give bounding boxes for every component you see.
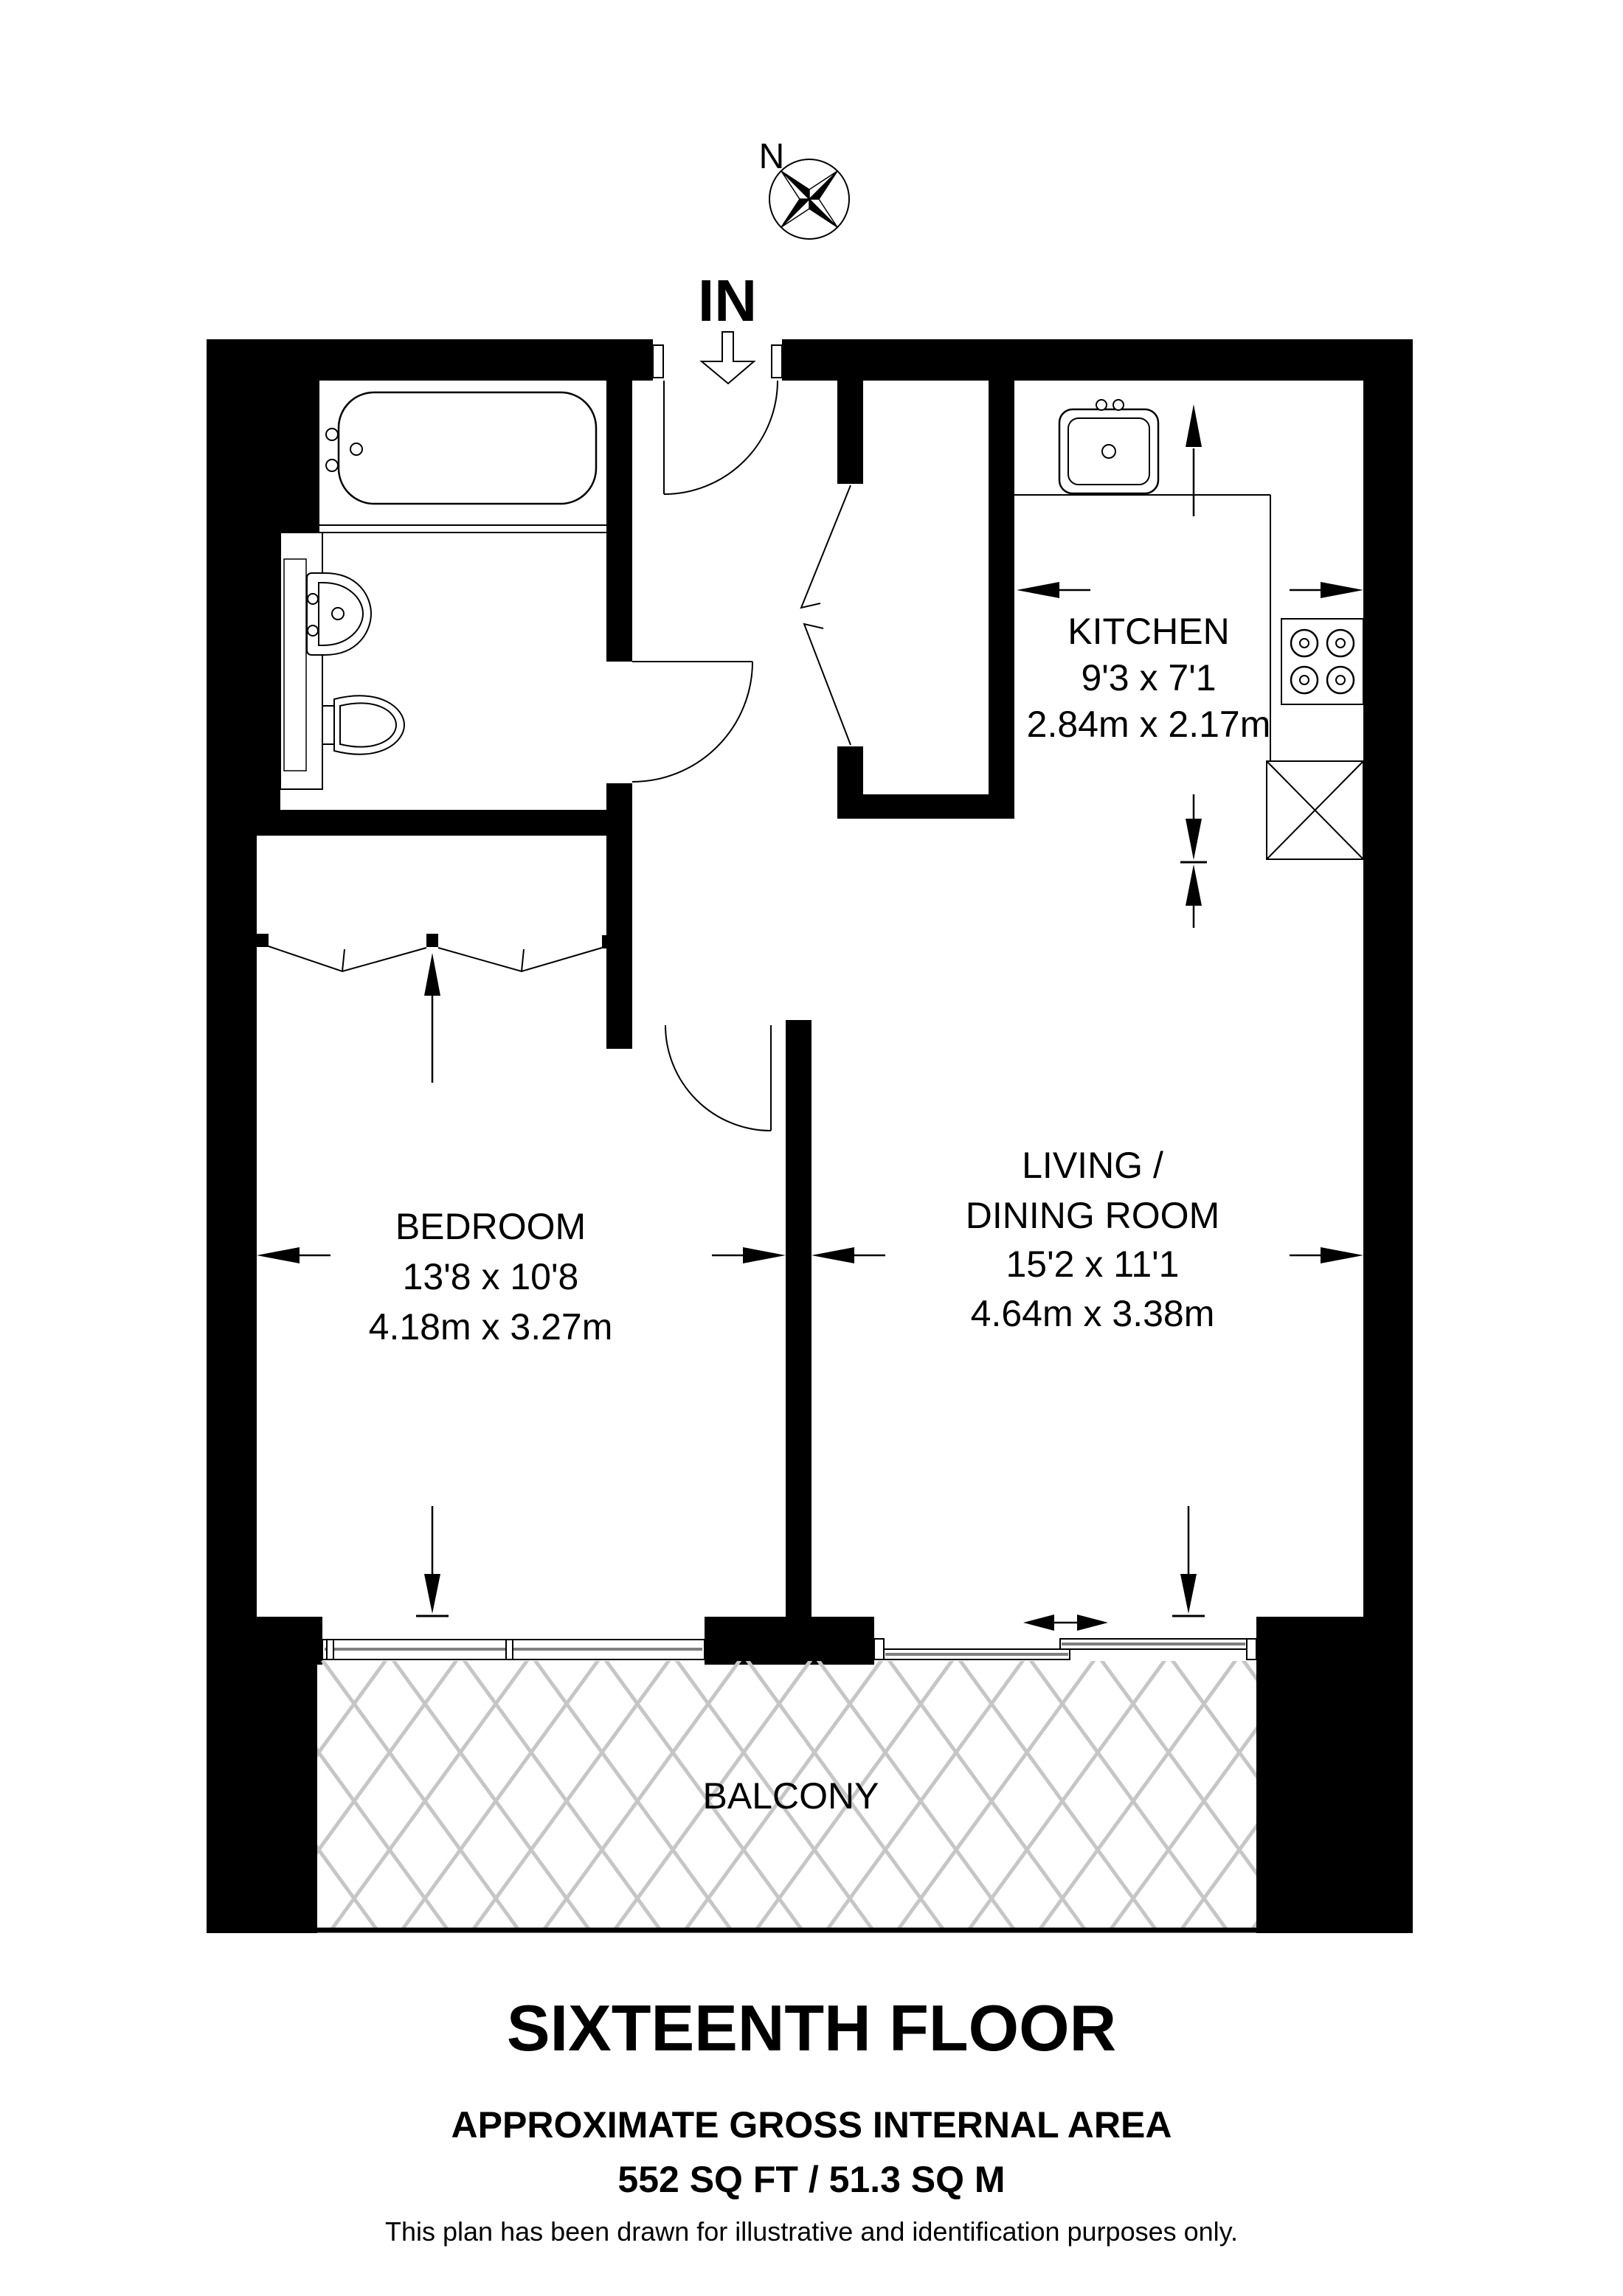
dim-arrow-living-left xyxy=(811,1247,885,1263)
living-name-line2: DINING ROOM xyxy=(966,1195,1219,1236)
bedroom-size-metric: 4.18m x 3.27m xyxy=(369,1306,613,1348)
floor-title: SIXTEENTH FLOOR xyxy=(507,1991,1116,2064)
wall-bathroom-bottom xyxy=(257,810,606,836)
disclaimer: This plan has been drawn for illustrativ… xyxy=(385,2216,1238,2247)
wall-balcony-right xyxy=(1256,1617,1413,1933)
living-size-metric: 4.64m x 3.38m xyxy=(971,1293,1215,1334)
kitchen-size-metric: 2.84m x 2.17m xyxy=(1027,704,1271,745)
wall-bedroom-living-divider xyxy=(786,1020,811,1617)
wall-cupboard-bottom xyxy=(837,794,1014,819)
dim-arrow-bedroom-down xyxy=(416,1506,449,1616)
dim-arrow-bedroom-up xyxy=(424,953,440,1083)
cupboard-bifold-doors-icon xyxy=(801,485,851,745)
hob-icon xyxy=(1281,619,1363,704)
entrance-label: IN xyxy=(698,268,757,333)
area-value: 552 SQ FT / 51.3 SQ M xyxy=(617,2159,1005,2200)
floor-plan-drawing: N IN xyxy=(0,0,1623,2296)
living-name-line1: LIVING / xyxy=(1022,1145,1163,1186)
dim-arrow-living-down xyxy=(1172,1506,1205,1616)
bedroom-name: BEDROOM xyxy=(395,1206,586,1247)
kitchen-name: KITCHEN xyxy=(1067,611,1229,652)
area-label: APPROXIMATE GROSS INTERNAL AREA xyxy=(451,2104,1172,2146)
kitchen-size-imperial: 9'3 x 7'1 xyxy=(1081,657,1216,698)
dim-arrow-kitchen-right xyxy=(1290,582,1363,598)
balcony-name: BALCONY xyxy=(703,1775,879,1817)
bedroom-window-icon xyxy=(322,1640,705,1659)
appliance-crossbox-icon xyxy=(1267,761,1363,859)
footer: SIXTEENTH FLOOR APPROXIMATE GROSS INTERN… xyxy=(385,1991,1238,2247)
door-jamb xyxy=(772,345,782,378)
basin-icon xyxy=(307,573,371,655)
vanity-icon xyxy=(280,533,322,789)
dim-arrow-kitchen-left xyxy=(1017,582,1090,598)
bathroom xyxy=(280,392,752,789)
wall-top-right xyxy=(782,339,1413,381)
compass-north-label: N xyxy=(759,137,785,176)
wall-left xyxy=(207,339,257,1617)
kitchen-sink-icon xyxy=(1059,400,1158,493)
wall-bath-end-block xyxy=(257,339,319,533)
entry-arrow-icon xyxy=(702,332,754,384)
bedroom-size-imperial: 13'8 x 10'8 xyxy=(403,1256,579,1297)
slide-direction-arrow-icon xyxy=(1023,1615,1108,1631)
compass-rose-icon: N xyxy=(759,137,849,239)
toilet-icon xyxy=(322,696,404,754)
dim-arrow-bedroom-right xyxy=(712,1247,786,1263)
dim-arrow-kitchen-living-boundary xyxy=(1180,794,1207,928)
wall-bathroom-west xyxy=(257,533,280,836)
wall-bath-hall-lower xyxy=(606,783,632,1049)
bedroom-door-swing-icon xyxy=(665,1025,771,1131)
wall-cupboard-left-upper xyxy=(837,381,863,484)
wall-balcony-left xyxy=(207,1617,322,1933)
bathtub-icon xyxy=(326,392,596,504)
dim-arrow-kitchen-up xyxy=(1186,404,1202,516)
wall-cupboard-right xyxy=(989,381,1014,819)
wall-divider-footing xyxy=(705,1617,874,1665)
dim-arrow-bedroom-left xyxy=(257,1247,331,1263)
wall-bath-hall-upper xyxy=(606,381,632,662)
floor-plan-page: N IN xyxy=(0,0,1623,2296)
wardrobe-sliding-doors-icon xyxy=(257,934,614,971)
sliding-door-icon xyxy=(874,1639,1256,1659)
door-jamb xyxy=(653,345,663,378)
wall-right xyxy=(1363,381,1413,1617)
dim-arrow-living-right xyxy=(1290,1247,1363,1263)
living-size-imperial: 15'2 x 11'1 xyxy=(1006,1244,1179,1285)
bathroom-door-swing-icon xyxy=(632,662,752,782)
